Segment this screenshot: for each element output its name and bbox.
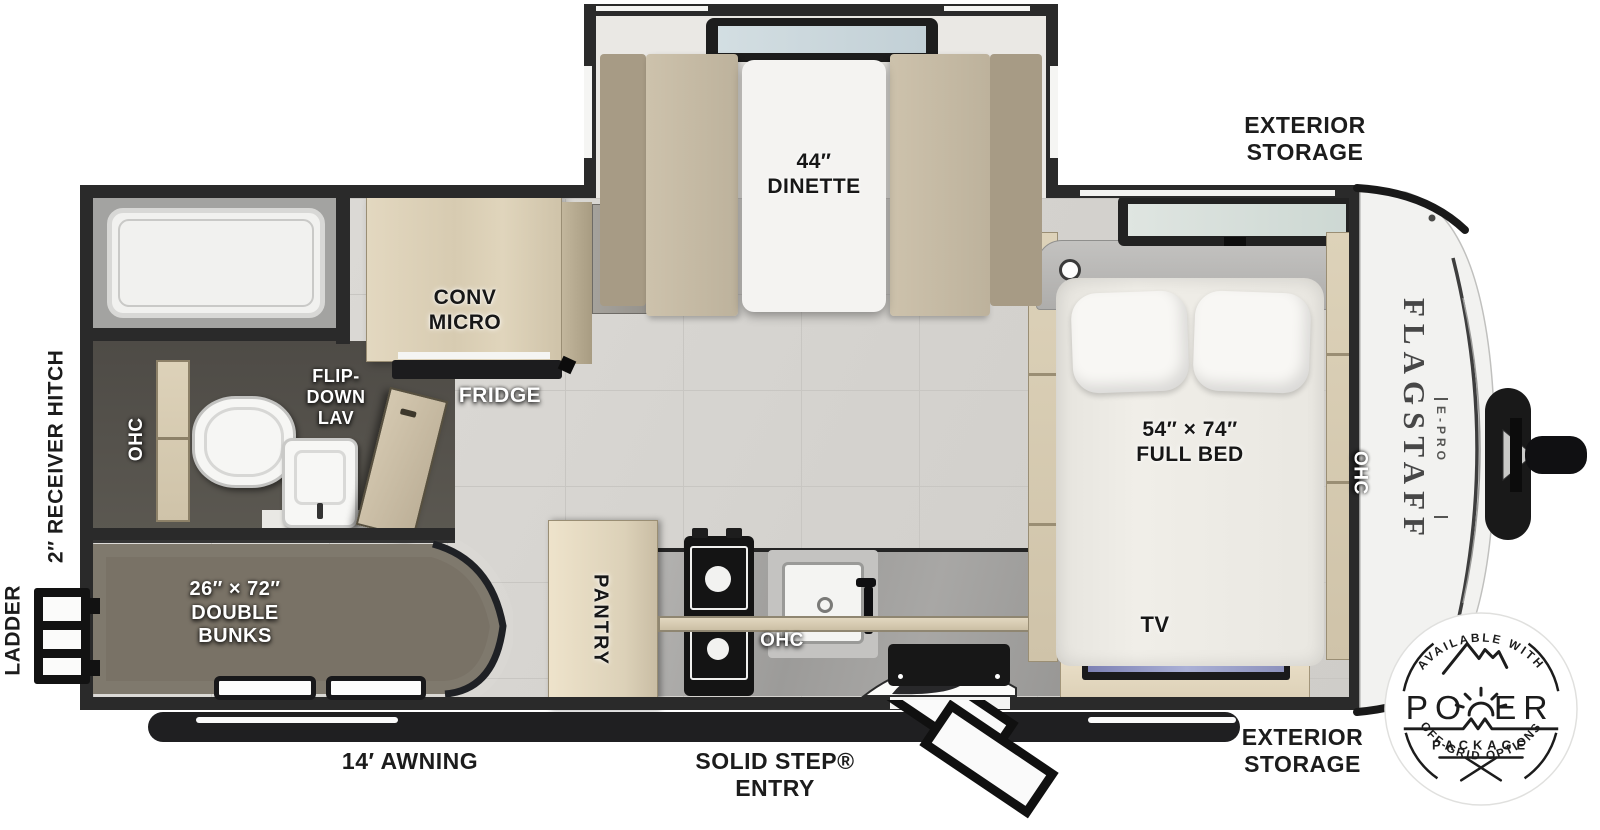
dinette-bench-back xyxy=(600,54,646,306)
label-pantry: PANTRY xyxy=(588,540,612,700)
dinette-bench-seat xyxy=(890,54,990,316)
brand-sub-logo: E-PRO xyxy=(1434,398,1448,518)
power-package-badge: AVAILABLE WITH PO ER PACKAGE OFF-GRID OP… xyxy=(1382,610,1580,808)
ladder-mount xyxy=(88,660,100,676)
label-full-bed: 54″ × 74″ FULL BED xyxy=(1090,418,1290,468)
slide-side-window xyxy=(1050,66,1058,158)
label-receiver-hitch: 2″ RECEIVER HITCH xyxy=(45,306,70,606)
label-exterior-storage-bottom: EXTERIOR STORAGE xyxy=(1195,724,1410,778)
slide-trim xyxy=(596,6,708,11)
label-flip-down-lav: FLIP- DOWN LAV xyxy=(280,366,392,430)
awning-rail xyxy=(148,712,1240,742)
top-wall-window xyxy=(1080,190,1335,196)
slide-trim xyxy=(944,6,1030,11)
label-conv-micro: CONV MICRO xyxy=(380,286,550,336)
label-bunks: 26″ × 72″ DOUBLE BUNKS xyxy=(150,578,320,649)
badge-power-right: ER xyxy=(1494,690,1555,727)
hitch xyxy=(1485,388,1587,540)
badge-power-left: PO xyxy=(1406,690,1469,727)
brand-logo: FLAGSTAFF xyxy=(1396,298,1432,588)
label-solid-step-entry: SOLID STEP® ENTRY xyxy=(660,748,890,802)
label-tv: TV xyxy=(1125,612,1185,638)
floorplan-canvas: FLAGSTAFF E-PRO EXTERIOR STORAGE EXTERIO… xyxy=(0,0,1600,830)
dinette-bench-back xyxy=(990,54,1042,306)
label-bed-ohc: OHC xyxy=(1348,428,1370,518)
label-exterior-storage-top: EXTERIOR STORAGE xyxy=(1200,112,1410,166)
slide-side-window xyxy=(584,66,592,158)
bunk-window xyxy=(214,676,316,700)
label-kitchen-ohc: OHC xyxy=(742,630,822,652)
dinette-bench-seat xyxy=(646,54,738,316)
ladder-mount xyxy=(88,598,100,614)
bunk-window xyxy=(326,676,426,700)
label-ladder: LADDER xyxy=(2,550,27,710)
label-fridge: FRIDGE xyxy=(420,384,580,409)
label-dinette: 44″ DINETTE xyxy=(742,150,886,200)
label-bath-ohc: OHC xyxy=(126,394,148,484)
label-awning: 14′ AWNING xyxy=(300,748,520,775)
